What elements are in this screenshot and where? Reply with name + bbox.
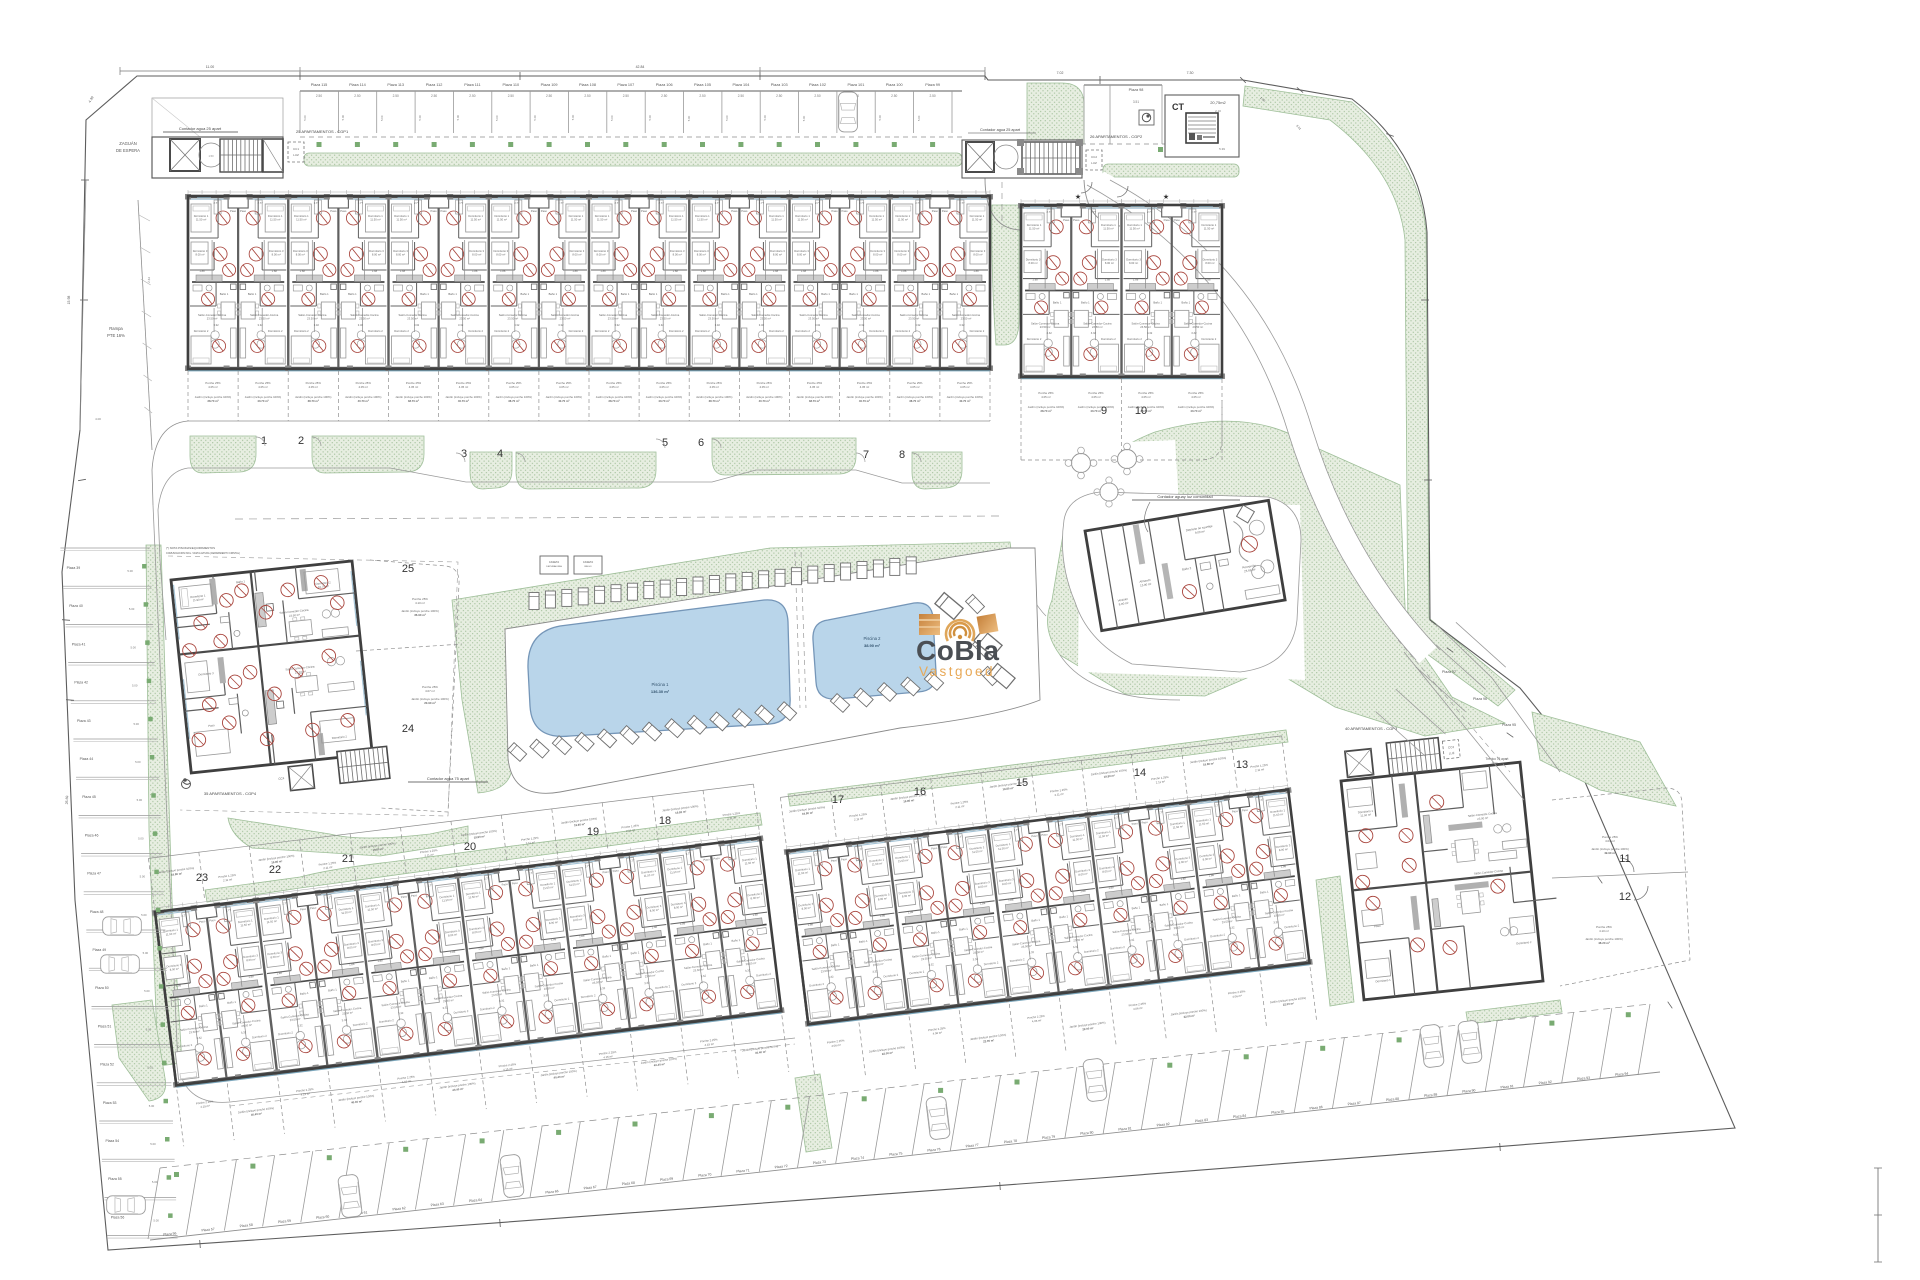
svg-text:2.50: 2.50	[661, 94, 667, 98]
svg-text:Paso: Paso	[1374, 924, 1381, 929]
svg-text:5.00: 5.00	[138, 836, 144, 840]
svg-text:15.98: 15.98	[67, 296, 71, 305]
svg-text:21: 21	[342, 853, 354, 865]
svg-text:42.84: 42.84	[636, 65, 645, 69]
svg-text:5.00: 5.00	[456, 114, 460, 120]
svg-text:RIEGO: RIEGO	[584, 566, 591, 568]
svg-text:5.00: 5.00	[132, 684, 138, 688]
svg-text:Vastgoed: Vastgoed	[919, 664, 995, 679]
svg-text:5.00: 5.00	[144, 989, 150, 993]
svg-text:Plaza 45: Plaza 45	[82, 795, 96, 799]
svg-text:Plaza 110: Plaza 110	[502, 83, 519, 87]
svg-text:17: 17	[832, 794, 844, 806]
svg-text:5.00: 5.00	[149, 1104, 155, 1108]
svg-text:2.50: 2.50	[929, 94, 935, 98]
svg-text:2.50: 2.50	[891, 94, 897, 98]
svg-text:★: ★	[1075, 193, 1081, 201]
svg-text:Plaza 40: Plaza 40	[69, 604, 83, 608]
svg-text:Plaza 43: Plaza 43	[77, 719, 91, 723]
svg-text:20,75m2: 20,75m2	[1210, 100, 1226, 105]
svg-text:5.00: 5.00	[147, 1066, 153, 1070]
svg-text:12: 12	[1619, 891, 1631, 903]
svg-text:2.50: 2.50	[699, 94, 705, 98]
svg-text:Plaza 108: Plaza 108	[579, 83, 596, 87]
svg-text:Contador agua 25 apart: Contador agua 25 apart	[980, 128, 1021, 132]
svg-text:LUZ: LUZ	[293, 153, 299, 157]
svg-text:3.51: 3.51	[1133, 100, 1139, 104]
svg-text:6: 6	[698, 437, 704, 449]
svg-text:CC3: CC3	[1448, 745, 1455, 750]
svg-text:5.00: 5.00	[725, 115, 729, 121]
svg-text:49.90 m²: 49.90 m²	[1604, 851, 1616, 855]
svg-text:CoBla: CoBla	[916, 635, 999, 666]
svg-text:CT: CT	[1172, 102, 1184, 112]
svg-text:14: 14	[1134, 767, 1146, 779]
svg-text:2.50: 2.50	[316, 94, 322, 98]
svg-text:2.54: 2.54	[147, 277, 151, 283]
svg-text:5.00: 5.00	[341, 114, 345, 120]
svg-text:25 APARTAMENTOS - CGP1: 25 APARTAMENTOS - CGP1	[296, 129, 349, 134]
svg-text:Plaza 44: Plaza 44	[80, 757, 94, 761]
svg-text:22: 22	[269, 864, 281, 876]
svg-text:5.00: 5.00	[418, 115, 422, 121]
svg-text:5.00: 5.00	[137, 798, 143, 802]
svg-text:7.30: 7.30	[1187, 71, 1194, 75]
svg-text:Plaza 100: Plaza 100	[886, 83, 903, 87]
svg-text:4.10 m²: 4.10 m²	[415, 601, 425, 605]
svg-text:Plaza 47: Plaza 47	[87, 872, 101, 876]
svg-text:Plaza 105: Plaza 105	[694, 83, 711, 87]
svg-text:Plaza 115: Plaza 115	[311, 83, 328, 87]
svg-text:5.00: 5.00	[146, 1027, 152, 1031]
svg-text:Plaza 104: Plaza 104	[732, 83, 749, 87]
svg-text:15: 15	[1016, 777, 1028, 789]
svg-text:CC2: CC2	[1091, 155, 1097, 159]
svg-text:26 APARTAMENTOS - CGP2: 26 APARTAMENTOS - CGP2	[1090, 134, 1143, 139]
svg-text:20.90 m²: 20.90 m²	[424, 701, 436, 705]
svg-text:5.00: 5.00	[133, 722, 139, 726]
svg-text:5.00: 5.00	[571, 114, 575, 120]
svg-text:CC1: CC1	[293, 147, 299, 151]
svg-text:★: ★	[1163, 193, 1169, 201]
svg-text:(*) NOTA:PISCINAS/EQUIPAMIENTO: (*) NOTA:PISCINAS/EQUIPAMIENTOS	[166, 546, 215, 550]
svg-text:26.69: 26.69	[65, 795, 69, 804]
svg-text:CASETA: CASETA	[583, 560, 593, 564]
svg-text:Plaza 106: Plaza 106	[656, 83, 673, 87]
svg-text:36.90 m²: 36.90 m²	[414, 613, 426, 617]
svg-text:40 APARTAMENTOS - CGP3: 40 APARTAMENTOS - CGP3	[1345, 726, 1398, 731]
svg-text:9: 9	[1101, 405, 1107, 417]
svg-text:23: 23	[196, 872, 208, 884]
svg-text:5.00: 5.00	[140, 875, 146, 879]
svg-text:Rampa: Rampa	[109, 326, 123, 331]
svg-text:5.00: 5.00	[878, 115, 882, 121]
svg-text:Plaza 95: Plaza 95	[1502, 723, 1516, 727]
svg-text:Plaza 51: Plaza 51	[98, 1024, 112, 1028]
svg-text:Contador aguay luz comunidad: Contador aguay luz comunidad	[1157, 494, 1212, 499]
svg-text:5.00: 5.00	[495, 115, 499, 121]
svg-text:Plaza 52: Plaza 52	[100, 1063, 114, 1067]
svg-text:Plaza 109: Plaza 109	[541, 83, 558, 87]
svg-text:Plaza 101: Plaza 101	[847, 83, 864, 87]
svg-text:Piscina 1: Piscina 1	[652, 682, 670, 687]
svg-text:5.00: 5.00	[150, 1142, 156, 1146]
svg-text:48.20 m²: 48.20 m²	[1598, 941, 1610, 945]
svg-text:Plaza 42: Plaza 42	[74, 681, 88, 685]
svg-text:4.00: 4.00	[95, 417, 101, 421]
svg-text:Plaza 102: Plaza 102	[809, 83, 826, 87]
svg-text:10: 10	[1135, 405, 1147, 417]
svg-text:Plaza 54: Plaza 54	[105, 1139, 119, 1143]
svg-text:5.00: 5.00	[533, 115, 537, 121]
svg-text:Plaza 111: Plaza 111	[464, 83, 480, 87]
svg-text:Plaza 49: Plaza 49	[92, 948, 106, 952]
svg-text:2.50: 2.50	[393, 94, 399, 98]
svg-text:2.50: 2.50	[623, 94, 629, 98]
svg-text:CASETA: CASETA	[549, 560, 559, 564]
svg-text:Plaza 114: Plaza 114	[349, 83, 366, 87]
svg-text:19: 19	[587, 826, 599, 838]
svg-text:Plaza 48: Plaza 48	[90, 910, 104, 914]
svg-text:LUZ: LUZ	[1091, 161, 1097, 165]
svg-text:2.50: 2.50	[546, 94, 552, 98]
svg-text:Plaza 103: Plaza 103	[771, 83, 788, 87]
svg-text:5.00: 5.00	[687, 115, 691, 121]
svg-text:5.00: 5.00	[143, 951, 149, 955]
svg-text:5.00: 5.00	[153, 1218, 159, 1222]
svg-text:Plaza 99: Plaza 99	[925, 83, 940, 87]
svg-text:4.07 m²: 4.07 m²	[425, 689, 435, 693]
svg-text:25: 25	[402, 563, 414, 575]
svg-text:18: 18	[659, 815, 671, 827]
svg-text:7.02: 7.02	[1057, 71, 1064, 75]
svg-text:Contador agua 75 apart: Contador agua 75 apart	[427, 776, 470, 781]
svg-text:5.00: 5.00	[610, 115, 614, 121]
svg-text:5.00: 5.00	[135, 760, 141, 764]
svg-text:Plaza 56: Plaza 56	[111, 1215, 125, 1219]
svg-text:Paso: Paso	[208, 723, 215, 728]
svg-text:2.50: 2.50	[469, 94, 475, 98]
svg-text:11.00: 11.00	[206, 65, 215, 69]
svg-text:5.00: 5.00	[802, 115, 806, 121]
svg-text:5.39: 5.39	[1219, 147, 1225, 151]
svg-text:2.50: 2.50	[354, 94, 360, 98]
svg-text:5.00: 5.00	[127, 569, 133, 573]
svg-text:5.00: 5.00	[130, 645, 136, 649]
svg-text:1.50: 1.50	[208, 154, 214, 158]
svg-text:2.50: 2.50	[508, 94, 514, 98]
svg-text:5.00: 5.00	[129, 607, 135, 611]
svg-text:5.00: 5.00	[152, 1180, 158, 1184]
svg-text:Plaza 113: Plaza 113	[387, 83, 404, 87]
svg-text:PTE 16%: PTE 16%	[107, 333, 125, 338]
svg-text:35 APARTAMENTOS - CGP4: 35 APARTAMENTOS - CGP4	[204, 791, 257, 796]
svg-text:DEPURADORA: DEPURADORA	[546, 565, 562, 568]
svg-text:5.00: 5.00	[141, 913, 147, 917]
svg-text:DE ESPERA: DE ESPERA	[116, 148, 140, 153]
svg-text:Plaza 41: Plaza 41	[72, 642, 86, 646]
svg-text:38.90 m²: 38.90 m²	[864, 643, 881, 648]
svg-text:4.10 m²: 4.10 m²	[1599, 929, 1609, 933]
svg-text:Piscina 2: Piscina 2	[864, 636, 882, 641]
svg-text:Plaza 53: Plaza 53	[103, 1101, 117, 1105]
svg-text:2.50: 2.50	[776, 94, 782, 98]
svg-text:11: 11	[1619, 853, 1630, 865]
svg-text:2.50: 2.50	[431, 94, 437, 98]
svg-text:2.50: 2.50	[738, 94, 744, 98]
svg-text:Contador agua 25 apart: Contador agua 25 apart	[179, 126, 222, 131]
svg-text:LUZ: LUZ	[1449, 751, 1455, 756]
svg-text:13: 13	[1236, 759, 1248, 771]
svg-text:Plaza 50: Plaza 50	[95, 986, 109, 990]
svg-text:20: 20	[464, 841, 476, 853]
svg-text:Plaza 55: Plaza 55	[108, 1177, 122, 1181]
svg-text:24: 24	[402, 723, 414, 735]
svg-text:CC4: CC4	[278, 776, 285, 781]
svg-text:2.50: 2.50	[584, 94, 590, 98]
svg-text:Plaza 96: Plaza 96	[1473, 697, 1487, 701]
svg-text:5.00: 5.00	[303, 115, 307, 121]
svg-text:2: 2	[298, 435, 304, 447]
svg-text:16: 16	[914, 786, 926, 798]
svg-text:Trevico 75 apart: Trevico 75 apart	[1486, 757, 1509, 761]
svg-text:Plaza 98: Plaza 98	[1129, 88, 1144, 92]
svg-text:ZAGUÁN: ZAGUÁN	[119, 141, 136, 146]
svg-text:Plaza 39: Plaza 39	[67, 566, 81, 570]
svg-text:1: 1	[261, 435, 267, 447]
svg-text:Plaza 107: Plaza 107	[617, 83, 634, 87]
svg-text:4.04 m²: 4.04 m²	[1605, 839, 1615, 843]
svg-text:Plaza 112: Plaza 112	[426, 83, 443, 87]
svg-text:2.50: 2.50	[814, 94, 820, 98]
svg-text:Plaza 97: Plaza 97	[1442, 670, 1456, 674]
svg-text:5.00: 5.00	[763, 115, 767, 121]
svg-text:Plaza 46: Plaza 46	[85, 833, 99, 837]
svg-text:136.30 m²: 136.30 m²	[651, 689, 670, 694]
svg-text:5.00: 5.00	[917, 115, 921, 121]
svg-text:8: 8	[899, 449, 905, 461]
svg-text:4: 4	[497, 448, 503, 460]
svg-text:5.00: 5.00	[648, 115, 652, 121]
svg-text:COMUNICACION INCL. VASTA ALTUR: COMUNICACION INCL. VASTA ALTURA (CERRAMI…	[166, 552, 240, 555]
svg-text:5.00: 5.00	[380, 115, 384, 121]
svg-text:7: 7	[863, 449, 869, 461]
